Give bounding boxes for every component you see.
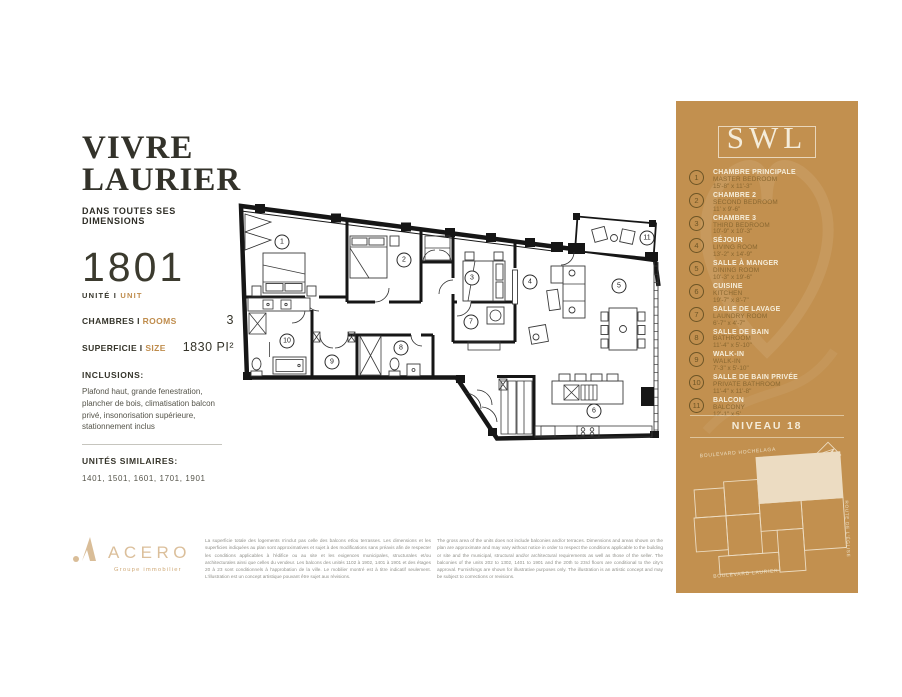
legend-room-dimensions: 11'-4" x 11'-8": [713, 389, 798, 396]
street-label-bottom: BOULEVARD LAURIER: [713, 568, 779, 580]
divider-line: [690, 437, 844, 438]
spec-rooms-fr: CHAMBRES: [82, 316, 134, 326]
unit-label-sep: I: [114, 291, 117, 300]
divider-line: [690, 415, 844, 416]
key-plan: BOULEVARD HOCHELAGA BOULEVARD LAURIER RO…: [676, 439, 858, 593]
room-marker-number: 3: [470, 275, 474, 282]
spec-row-size: SUPERFICIE I SIZE 1830 PI²: [82, 340, 234, 354]
project-title: VIVRE LAURIER: [82, 133, 234, 196]
spec-size-sep: I: [140, 343, 143, 353]
similar-units-title: UNITÉS SIMILAIRES:: [82, 456, 234, 466]
legend-text: SALLE DE LAVAGE LAUNDRY ROOM 6'-7" x 4'-…: [713, 306, 780, 328]
brochure-page: VIVRE LAURIER DANS TOUTES SES DIMENSIONS…: [0, 0, 902, 697]
acero-logo-mark: [72, 533, 100, 563]
room-marker-number: 5: [617, 283, 621, 290]
legend-room-dimensions: 7'-3" x 5'-10": [713, 366, 749, 373]
legend-item: 5 SALLE À MANGER DINING ROOM 10'-3" x 19…: [689, 260, 852, 283]
legend-number-badge: 8: [689, 330, 704, 345]
spec-rooms-en: ROOMS: [143, 316, 177, 326]
spec-size-en: SIZE: [145, 343, 166, 353]
spec-row-rooms: CHAMBRES I ROOMS 3: [82, 313, 234, 327]
room-marker-number: 11: [643, 235, 650, 242]
legend-room-dimensions: 6'-7" x 4'-7": [713, 321, 780, 328]
legend-number: 8: [694, 333, 698, 342]
legend-number-badge: 7: [689, 307, 704, 322]
legend-item: 1 CHAMBRE PRINCIPALE MASTER BEDROOM 15'-…: [689, 169, 852, 192]
legend-item: 4 SÉJOUR LIVING ROOM 13'-2" x 14'-9": [689, 237, 852, 260]
developer-subtitle: Groupe immobilier: [114, 567, 192, 573]
project-title-line2: LAURIER: [82, 165, 234, 197]
unit-number: 1801: [82, 247, 234, 288]
highlighted-unit: [756, 452, 843, 504]
legend-room-name-fr: CHAMBRE 3: [713, 215, 770, 222]
legend-item: 10 SALLE DE BAIN PRIVÉE PRIVATE BATHROOM…: [689, 374, 852, 397]
legend-number-badge: 5: [689, 261, 704, 276]
legend-item: 7 SALLE DE LAVAGE LAUNDRY ROOM 6'-7" x 4…: [689, 306, 852, 329]
legend-text: SALLE À MANGER DINING ROOM 10'-3" x 19'-…: [713, 260, 779, 282]
legend-text: SÉJOUR LIVING ROOM 13'-2" x 14'-9": [713, 237, 758, 259]
legend-room-dimensions: 11'-4" x 5'-10": [713, 343, 769, 350]
room-legend: 1 CHAMBRE PRINCIPALE MASTER BEDROOM 15'-…: [689, 169, 852, 420]
legend-sidebar: SWL 1 CHAMBRE PRINCIPALE MASTER BEDROOM …: [676, 101, 858, 593]
room-marker-number: 4: [528, 279, 532, 286]
legend-number-badge: 10: [689, 375, 704, 390]
spec-label-size: SUPERFICIE I SIZE: [82, 343, 166, 353]
legend-number: 4: [694, 241, 698, 250]
level-banner: NIVEAU 18: [690, 415, 844, 438]
legend-room-dimensions: 13'-2" x 14'-9": [713, 252, 758, 259]
legend-number-badge: 3: [689, 216, 704, 231]
legend-number: 1: [694, 173, 698, 182]
legend-text: CHAMBRE 3 THIRD BEDROOM 10'-9" x 10'-3": [713, 215, 770, 237]
building-footprint: [690, 452, 848, 578]
legend-number-badge: 4: [689, 238, 704, 253]
legend-text: SALLE DE BAIN BATHROOM 11'-4" x 5'-10": [713, 329, 769, 351]
similar-units-list: 1401, 1501, 1601, 1701, 1901: [82, 474, 234, 483]
project-title-line1: VIVRE: [82, 133, 234, 165]
legend-room-dimensions: 10'-3" x 19'-6": [713, 275, 779, 282]
street-label-right: ROUTE DE L'ÉGLISE: [844, 500, 852, 557]
legend-text: CHAMBRE 2 SECOND BEDROOM 11' x 9'-6": [713, 192, 778, 214]
inclusions-text: Plafond haut, grande fenestration, planc…: [82, 386, 234, 432]
room-marker-number: 9: [330, 359, 334, 366]
unit-label-en: UNIT: [120, 291, 142, 300]
unit-label-fr: UNITÉ: [82, 291, 111, 300]
inclusions-title: INCLUSIONS:: [82, 370, 234, 380]
legend-item: 2 CHAMBRE 2 SECOND BEDROOM 11' x 9'-6": [689, 192, 852, 215]
legend-number: 10: [692, 378, 700, 387]
legend-room-dimensions: 11' x 9'-6": [713, 207, 778, 214]
legend-number: 7: [694, 310, 698, 319]
developer-name: ACERO: [108, 543, 191, 563]
project-tagline: DANS TOUTES SES DIMENSIONS: [82, 206, 234, 226]
legend-room-dimensions: 19'-7" x 8'-7": [713, 298, 749, 305]
legend-number: 6: [694, 287, 698, 296]
disclaimer-french: La superficie totale des logements n'inc…: [205, 537, 431, 581]
legend-room-dimensions: 15'-8" x 11'-3": [713, 184, 796, 191]
legend-number-badge: 11: [689, 398, 704, 413]
spec-rooms-sep: I: [137, 316, 140, 326]
legend-number: 9: [694, 355, 698, 364]
room-marker-number: 1: [280, 239, 284, 246]
legend-text: SALLE DE BAIN PRIVÉE PRIVATE BATHROOM 11…: [713, 374, 798, 396]
legend-number-badge: 9: [689, 352, 704, 367]
room-marker-number: 2: [402, 257, 406, 264]
spec-label-rooms: CHAMBRES I ROOMS: [82, 316, 177, 326]
disclaimer-english: The gross area of the units does not inc…: [437, 537, 663, 581]
unit-label: UNITÉ I UNIT: [82, 291, 234, 300]
room-marker-number: 6: [592, 408, 596, 415]
legend-text: CHAMBRE PRINCIPALE MASTER BEDROOM 15'-8"…: [713, 169, 796, 191]
room-marker-number: 7: [469, 319, 473, 326]
legend-room-dimensions: 10'-9" x 10'-3": [713, 229, 770, 236]
legend-item: 6 CUISINE KITCHEN 19'-7" x 8'-7": [689, 283, 852, 306]
unit-info-column: VIVRE LAURIER DANS TOUTES SES DIMENSIONS…: [82, 133, 234, 483]
legend-item: 8 SALLE DE BAIN BATHROOM 11'-4" x 5'-10": [689, 329, 852, 352]
legend-number: 11: [693, 401, 701, 410]
room-marker-number: 8: [399, 345, 403, 352]
room-marker-number: 10: [283, 338, 291, 345]
legend-text: CUISINE KITCHEN 19'-7" x 8'-7": [713, 283, 749, 305]
legend-number-badge: 6: [689, 284, 704, 299]
legend-number-badge: 2: [689, 193, 704, 208]
floor-plan: 1234567891011: [225, 190, 677, 468]
legend-text: WALK-IN WALK-IN 7'-3" x 5'-10": [713, 351, 749, 373]
legend-item: 3 CHAMBRE 3 THIRD BEDROOM 10'-9" x 10'-3…: [689, 215, 852, 238]
legend-number: 3: [694, 219, 698, 228]
legend-number: 5: [694, 264, 698, 273]
developer-logo: ACERO Groupe immobilier: [72, 533, 192, 573]
swl-logo: SWL: [676, 122, 858, 153]
legend-item: 9 WALK-IN WALK-IN 7'-3" x 5'-10": [689, 351, 852, 374]
legend-number-badge: 1: [689, 170, 704, 185]
legend-number: 2: [694, 196, 698, 205]
level-label: NIVEAU 18: [690, 420, 844, 432]
spec-size-fr: SUPERFICIE: [82, 343, 137, 353]
divider-line: [82, 444, 222, 445]
